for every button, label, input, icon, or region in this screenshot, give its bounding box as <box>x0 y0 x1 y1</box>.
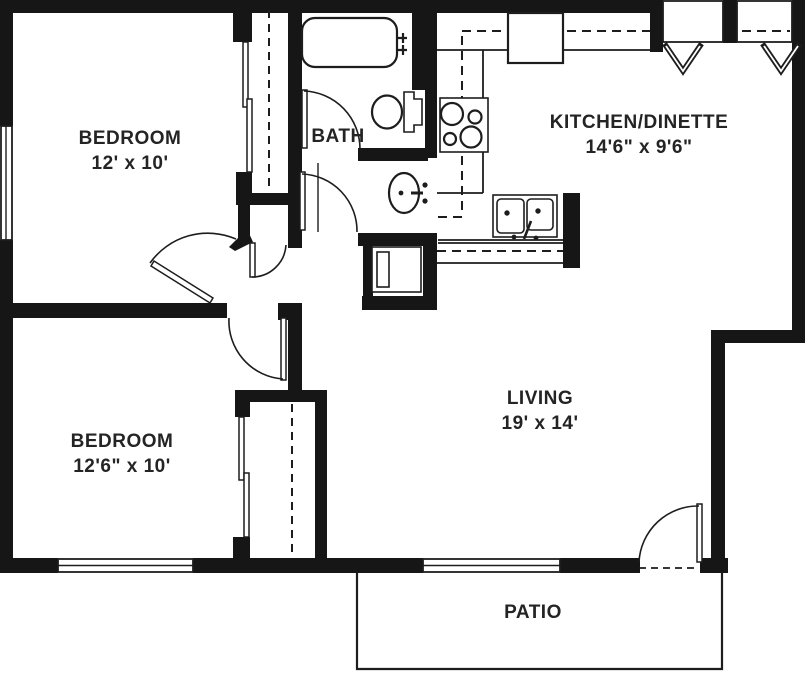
room-label-kitchen: KITCHEN/DINETTE <box>550 112 729 133</box>
window-kitchen-north-2 <box>737 1 792 42</box>
kitchen-sink-icon <box>493 195 557 240</box>
door-leaf <box>302 90 307 148</box>
bypass-door-panel <box>239 417 244 480</box>
refrigerator-icon <box>508 13 563 63</box>
door-leaf <box>151 261 213 303</box>
toilet-icon <box>372 92 422 132</box>
bypass-door-panel <box>247 99 252 172</box>
room-label-bath: BATH <box>311 126 364 147</box>
door-hall-closet <box>250 243 286 277</box>
bypass-door-panel <box>243 42 248 107</box>
wall-closet2-stub-a <box>235 390 250 417</box>
wall-closet1-bottom <box>236 193 303 205</box>
room-dims-bedroom-top: 12' x 10' <box>92 153 169 174</box>
water-heater-icon <box>372 247 421 292</box>
wall-left-upper <box>0 0 13 126</box>
wall-closet1-stub-a <box>233 0 252 42</box>
room-label-bedroom-bottom: BEDROOM <box>71 431 174 452</box>
wall-bedroom2-east <box>288 318 302 390</box>
door-leaf <box>697 504 702 562</box>
room-label-living: LIVING <box>507 388 573 409</box>
wall-kitchen-pier <box>563 193 580 268</box>
bypass-door-panel <box>244 473 249 537</box>
window-living-south <box>423 559 560 572</box>
wall-top <box>0 0 663 13</box>
floor-plan-canvas: BEDROOM 12' x 10' BATH KITCHEN/DINETTE 1… <box>0 0 805 676</box>
wall-utility-bottom <box>362 296 437 310</box>
door-swing-arc <box>302 174 357 232</box>
wall-bottom-2 <box>193 558 423 573</box>
floor-plan: BEDROOM 12' x 10' BATH KITCHEN/DINETTE 1… <box>0 0 805 676</box>
closet-bedroom-bottom <box>239 404 292 556</box>
window-bedroom-top-left <box>1 126 12 240</box>
wall-right-step <box>711 330 805 343</box>
wall-bath-east <box>425 90 437 158</box>
door-patio <box>639 504 702 568</box>
door-leaf <box>250 243 255 277</box>
casement-chevron-icon <box>666 46 700 71</box>
door-leaf <box>281 318 286 380</box>
wall-closet2-stub-b <box>233 537 250 558</box>
room-dims-living: 19' x 14' <box>502 413 579 434</box>
wall-vanity-south <box>358 233 430 246</box>
door-leaf <box>300 172 305 230</box>
door-swing-arc <box>229 318 283 379</box>
wall-top-pier-b <box>723 0 737 43</box>
door-bedroom-top <box>150 233 236 303</box>
door-swing-arc <box>639 506 699 562</box>
wall-bath-south <box>358 148 428 161</box>
wall-closet2-east <box>315 390 327 558</box>
door-swing-arc <box>252 245 286 277</box>
wall-left-lower <box>0 240 13 572</box>
cooktop-icon <box>440 98 488 152</box>
wall-right-lower <box>711 343 725 573</box>
door-swing-arc <box>150 233 236 263</box>
window-kitchen-north-1 <box>663 1 723 42</box>
vanity-sink-icon <box>318 163 428 232</box>
wall-top-pier-a <box>650 13 663 52</box>
room-dims-kitchen: 14'6" x 9'6" <box>585 137 692 158</box>
tub-faucet-icon <box>397 33 407 55</box>
wall-bottom-1 <box>0 558 58 573</box>
door-bedroom-bottom <box>229 318 286 380</box>
wall-bottom-3 <box>560 558 640 573</box>
wall-tub-east <box>412 0 437 90</box>
room-label-bedroom-top: BEDROOM <box>79 128 182 149</box>
door-vanity <box>300 172 357 232</box>
window-bedroom-bottom-south <box>58 559 193 572</box>
room-dims-bedroom-bottom: 12'6" x 10' <box>73 456 171 477</box>
bathtub-icon <box>302 18 407 67</box>
wall-bedroom-top-south <box>0 303 227 318</box>
room-label-patio: PATIO <box>504 602 562 623</box>
